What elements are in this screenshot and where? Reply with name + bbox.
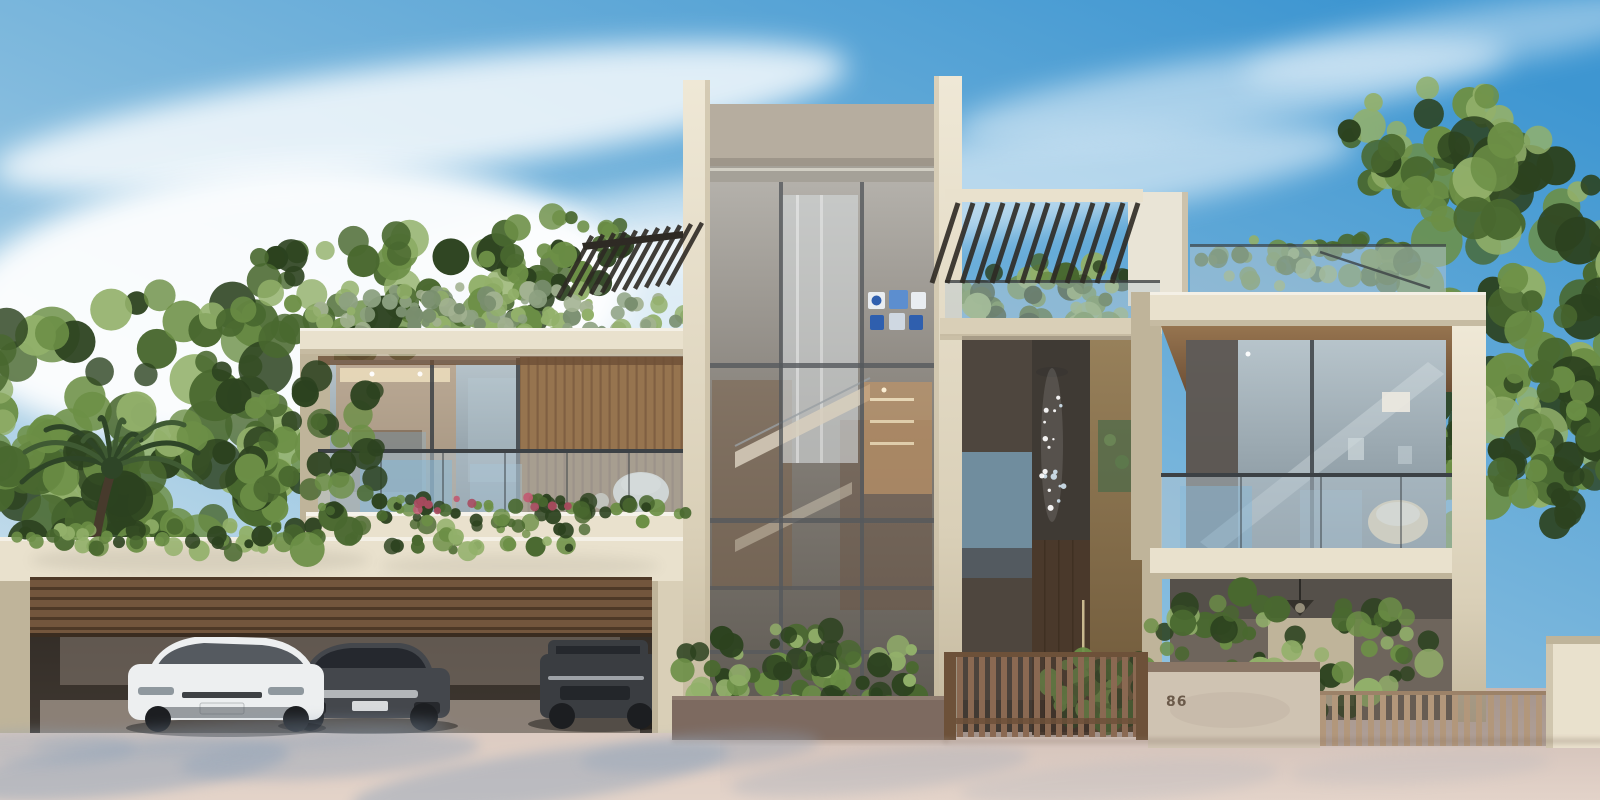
right-wing-pillar [1452,326,1486,722]
right-slat-fence [1320,691,1546,746]
rendering-canvas: 86 [0,0,1600,800]
interior-pendant-lamp [1382,392,1410,412]
right-gate-pillar [1546,636,1600,748]
right-balcony-balustrade [1161,473,1483,556]
house-number: 86 [1166,694,1187,710]
garage [0,537,692,737]
right-roof-balustrade [1190,244,1446,292]
villa-architectural-rendering: 86 [0,0,1600,800]
tower-top-volume [708,104,936,166]
door-handle [1082,600,1085,652]
mid-pergola-beam [945,189,1143,202]
stucco-wall: 86 [1148,662,1320,748]
mid-roof-balustrade [945,282,1160,322]
wall-art [1098,420,1134,492]
center-slat-fence [944,652,1148,740]
